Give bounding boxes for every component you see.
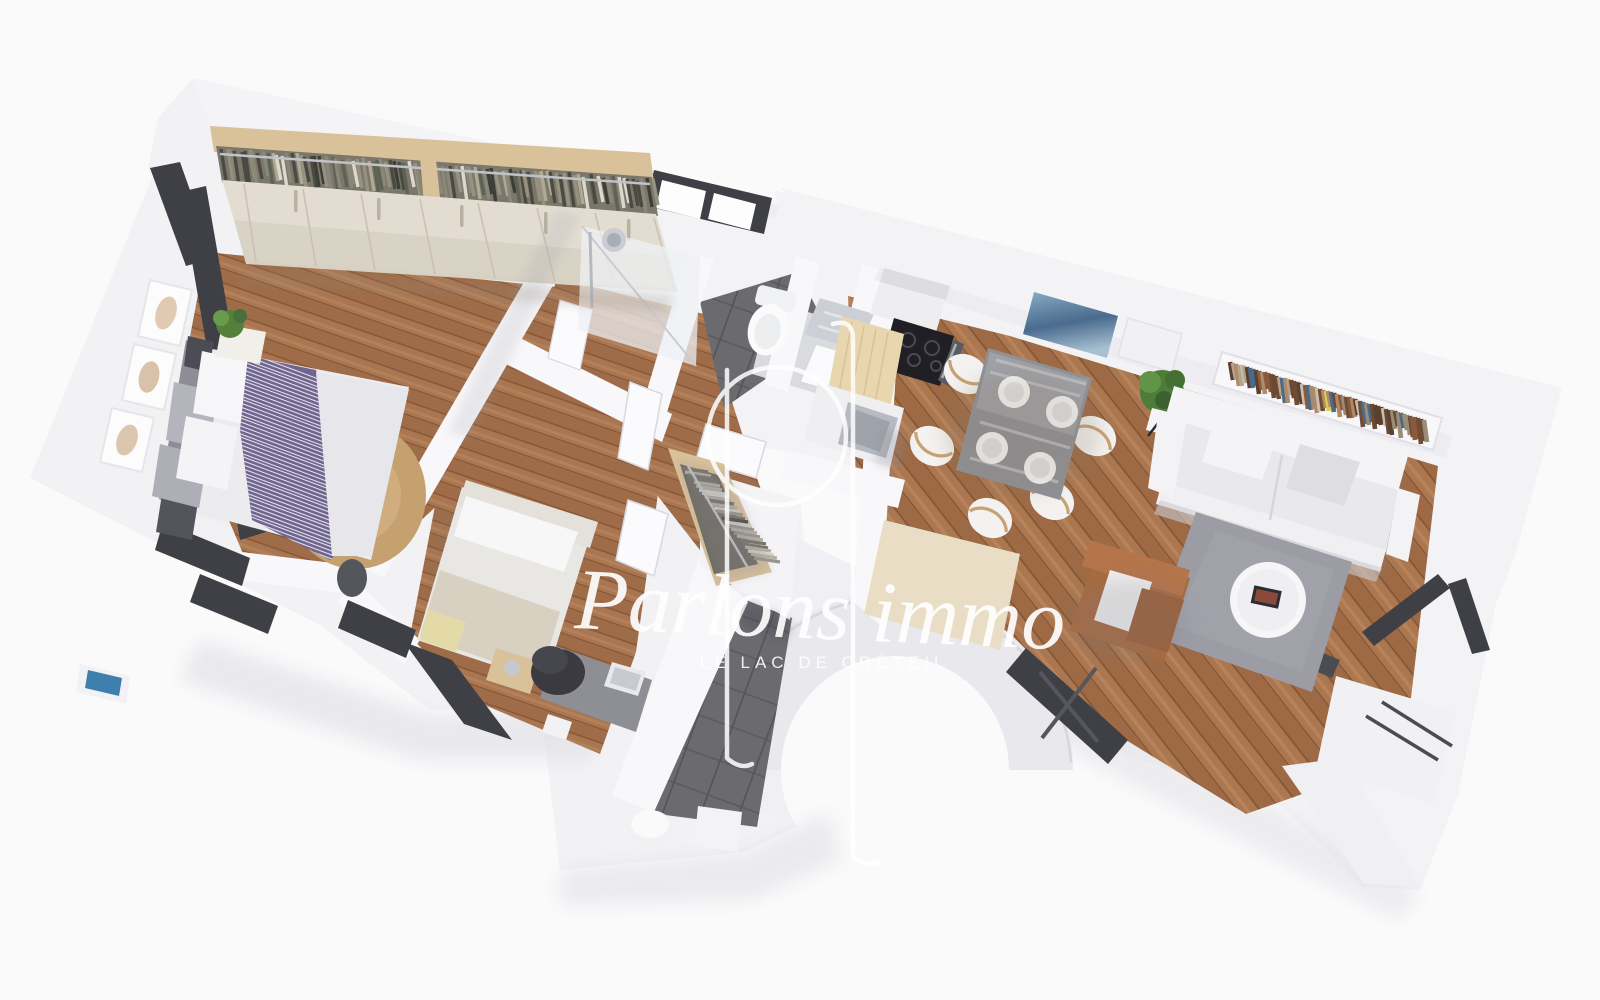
svg-text:LE LAC DE CRÉTEIL: LE LAC DE CRÉTEIL <box>700 653 948 672</box>
